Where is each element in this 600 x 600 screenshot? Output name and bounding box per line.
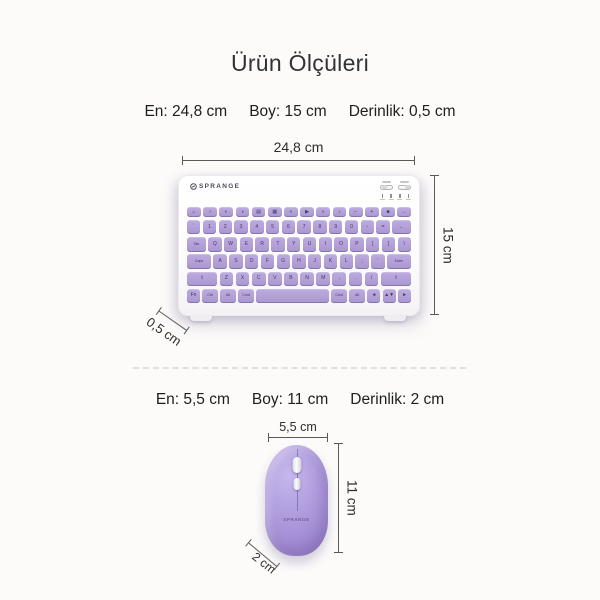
mouse-spec-en: En: 5,5 cm [156, 391, 230, 409]
mode-switch [398, 181, 411, 190]
keyboard-key: » [316, 207, 330, 217]
keyboard-key: ▶ [300, 207, 314, 217]
keyboard-key: A [213, 254, 226, 268]
mouse-brand-text: SPRANGE [265, 517, 328, 522]
mouse-height-label: 11 cm [345, 443, 359, 553]
keyboard-key: ▤ [252, 207, 266, 217]
keyboard-key: ` [187, 220, 200, 234]
keyboard-key: ○ [203, 207, 217, 217]
keyboard-key: Z [220, 272, 234, 286]
keyboard-foot-left [190, 315, 212, 321]
keyboard-key: 7 [297, 220, 310, 234]
keyboard-key: Fn [187, 289, 200, 303]
keyboard-key: 1 [203, 220, 216, 234]
keyboard-key-row: `1234567890-=← [187, 220, 411, 234]
keyboard-key: J [308, 254, 321, 268]
keyboard-key-row: ⇧ZXCVBNM,./⇧ [187, 272, 411, 286]
mouse-image: SPRANGE [265, 445, 328, 556]
keyboard-key: 0 [345, 220, 358, 234]
keyboard-key: Alt [349, 289, 365, 303]
keyboard-keys: ⌂○◐◑▤▦«▶»♪−+■←`1234567890-=←TabQWERTYUIO… [187, 207, 411, 303]
keyboard-key [256, 289, 329, 303]
keyboard-key: W [224, 237, 237, 251]
keyboard-key: B [284, 272, 298, 286]
power-switch [380, 181, 393, 190]
keyboard-key: ⇧ [187, 272, 217, 286]
indicator-lights [380, 194, 411, 200]
keyboard-key: Caps [187, 254, 211, 268]
mouse-dpi-button [293, 478, 300, 490]
mouse-spec-boy: Boy: 11 cm [252, 391, 328, 409]
keyboard-key: G [277, 254, 290, 268]
keyboard-key: X [236, 272, 250, 286]
keyboard-key: ▲▼ [383, 289, 396, 303]
keyboard-key: K [324, 254, 337, 268]
keyboard-key: Alt [220, 289, 236, 303]
keyboard-key: 5 [266, 220, 279, 234]
keyboard-key: Q [208, 237, 221, 251]
keyboard-key-row: CapsASDFGHJKL;'Enter [187, 254, 411, 268]
keyboard-key: ♪ [333, 207, 347, 217]
keyboard-key: ▦ [268, 207, 282, 217]
keyboard-key: C [252, 272, 266, 286]
keyboard-key: = [376, 220, 389, 234]
keyboard-key: D [245, 254, 258, 268]
keyboard-key: 4 [250, 220, 263, 234]
keyboard-key: - [361, 220, 374, 234]
keyboard-key: / [365, 272, 379, 286]
keyboard-key: ◄ [367, 289, 380, 303]
keyboard-height-dimension-line [430, 175, 439, 315]
keyboard-key: . [349, 272, 363, 286]
keyboard-key: O [334, 237, 347, 251]
keyboard-key-row: ⌂○◐◑▤▦«▶»♪−+■← [187, 207, 411, 217]
keyboard-key: U [303, 237, 316, 251]
keyboard-key: ■ [381, 207, 395, 217]
keyboard-spec-boy: Boy: 15 cm [249, 103, 327, 121]
keyboard-key: ⌂ [187, 207, 201, 217]
keyboard-key: V [268, 272, 282, 286]
keyboard-key: ⇧ [381, 272, 411, 286]
keyboard-key: \ [398, 237, 411, 251]
keyboard-width-label: 24,8 cm [182, 139, 415, 155]
mouse-height-dimension-line [334, 443, 343, 553]
page-title: Ürün Ölçüleri [0, 50, 600, 77]
keyboard-key: 9 [329, 220, 342, 234]
mouse-specs-row: En: 5,5 cm Boy: 11 cm Derinlik: 2 cm [0, 391, 600, 409]
keyboard-image: SPRANGE ⌂○◐◑▤▦«▶»♪−+■←`1234567890-=←TabQ… [178, 175, 420, 316]
keyboard-toggles [380, 181, 411, 190]
keyboard-key: P [350, 237, 363, 251]
keyboard-key: [ [366, 237, 379, 251]
keyboard-key: ← [392, 220, 411, 234]
keyboard-key-row: TabQWERTYUIOP[]\ [187, 237, 411, 251]
mouse-spec-derinlik: Derinlik: 2 cm [350, 391, 444, 409]
keyboard-key: Y [287, 237, 300, 251]
keyboard-key: L [340, 254, 353, 268]
keyboard-width-dimension-line [182, 156, 415, 165]
keyboard-brand: SPRANGE [190, 183, 240, 190]
keyboard-key: F [261, 254, 274, 268]
keyboard-key: ] [382, 237, 395, 251]
section-divider [133, 367, 466, 369]
keyboard-key: M [316, 272, 330, 286]
mouse-width-label: 5,5 cm [268, 420, 328, 434]
keyboard-key: Cmd [331, 289, 347, 303]
keyboard-key-row: FnCtrlAltCmdCmdAlt◄▲▼► [187, 289, 411, 303]
keyboard-specs-row: En: 24,8 cm Boy: 15 cm Derinlik: 0,5 cm [0, 103, 600, 121]
keyboard-key: 3 [234, 220, 247, 234]
keyboard-key: Ctrl [202, 289, 218, 303]
keyboard-brand-text: SPRANGE [199, 183, 240, 190]
keyboard-key: − [349, 207, 363, 217]
keyboard-key: Cmd [238, 289, 254, 303]
keyboard-key: 2 [219, 220, 232, 234]
keyboard-key: T [271, 237, 284, 251]
keyboard-key: ► [398, 289, 411, 303]
keyboard-key: ◐ [219, 207, 233, 217]
keyboard-key: ◑ [236, 207, 250, 217]
keyboard-key: E [240, 237, 253, 251]
mouse-scroll-wheel [292, 457, 301, 473]
keyboard-key: ; [355, 254, 368, 268]
mouse-width-dimension-line [268, 433, 328, 442]
keyboard-height-label: 15 cm [441, 175, 455, 315]
keyboard-key: H [292, 254, 305, 268]
keyboard-spec-en: En: 24,8 cm [144, 103, 227, 121]
keyboard-foot-right [384, 315, 406, 321]
keyboard-key: S [229, 254, 242, 268]
keyboard-spec-derinlik: Derinlik: 0,5 cm [349, 103, 456, 121]
keyboard-key: 6 [282, 220, 295, 234]
keyboard-key: , [332, 272, 346, 286]
keyboard-key: R [255, 237, 268, 251]
sprange-logo-icon [190, 183, 197, 190]
keyboard-key: ← [397, 207, 411, 217]
keyboard-key: Enter [387, 254, 411, 268]
product-dimensions-page: Ürün Ölçüleri En: 24,8 cm Boy: 15 cm Der… [0, 0, 600, 600]
keyboard-key: 8 [313, 220, 326, 234]
keyboard-key: ' [371, 254, 384, 268]
keyboard-key: I [319, 237, 332, 251]
keyboard-key: N [300, 272, 314, 286]
keyboard-key: Tab [187, 237, 206, 251]
keyboard-key: + [365, 207, 379, 217]
keyboard-key: « [284, 207, 298, 217]
